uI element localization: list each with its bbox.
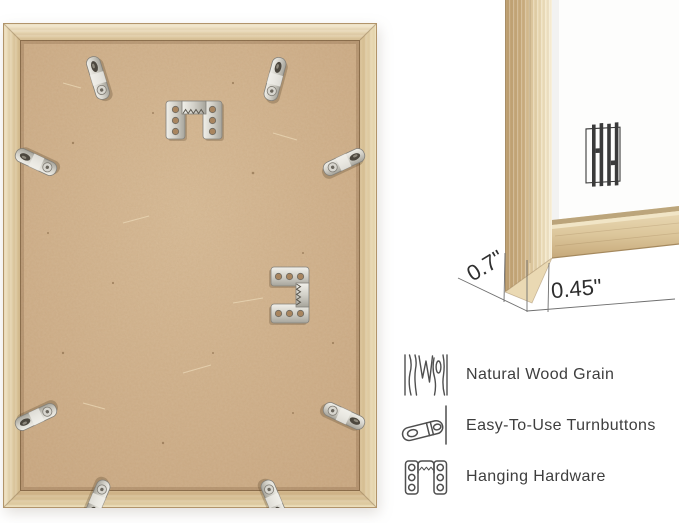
mat-board — [552, 0, 679, 221]
hanging-hardware-icon — [399, 454, 453, 500]
product-image: 0.7" 0.45" Natural Wood Grain — [0, 0, 679, 523]
features-list: Natural Wood Grain Easy-To-Use Turnbutto… — [399, 351, 675, 504]
feature-label: Hanging Hardware — [466, 468, 606, 486]
feature-label: Natural Wood Grain — [466, 366, 614, 384]
corner-wood-stile — [505, 0, 552, 303]
turnbutton-icon — [399, 404, 453, 448]
feature-item-wood-grain: Natural Wood Grain — [399, 351, 675, 399]
frame-back-photo — [3, 23, 377, 508]
feature-label: Easy-To-Use Turnbuttons — [466, 417, 656, 435]
wood-grain-icon — [399, 352, 453, 398]
depth-dimension-label: 0.7" — [462, 245, 508, 286]
frame-corner-detail: 0.7" 0.45" — [455, 0, 679, 330]
face-dimension-label: 0.45" — [550, 274, 603, 303]
feature-item-hanging-hardware: Hanging Hardware — [399, 453, 675, 501]
feature-item-turnbuttons: Easy-To-Use Turnbuttons — [399, 402, 675, 450]
